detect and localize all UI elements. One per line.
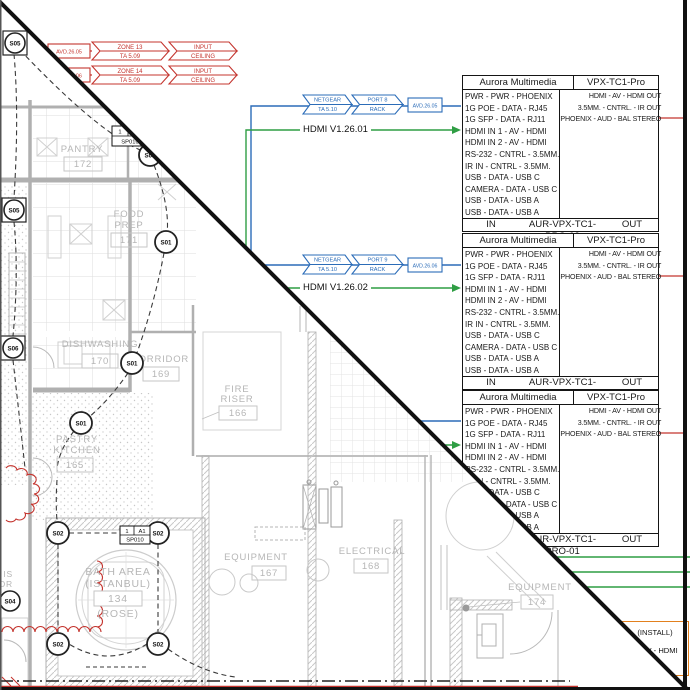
room-bath-label1: BATH AREA xyxy=(85,566,150,578)
run2-port-loc: RACK xyxy=(370,267,386,273)
zone1-loc: CEILING xyxy=(191,54,215,60)
device-input-row: HDMI IN 1 - AV - HDMI xyxy=(465,126,559,138)
wire-arrowheads xyxy=(452,126,461,449)
room-bath-label3: (ROSE) xyxy=(97,608,139,620)
device-input-row: 1G SFP - DATA - RJ11 xyxy=(465,429,559,441)
zone2-loc: CEILING xyxy=(191,78,215,84)
tag-s01-d: S01 xyxy=(75,421,87,428)
device-input-row: PWR - PWR - PHOENIX xyxy=(465,91,559,103)
device-out-label: OUT xyxy=(606,534,658,547)
room-fireriser-label2: RISER xyxy=(220,394,253,405)
device-input-row: USB - DATA - USB A xyxy=(465,195,559,207)
device-model: VPX-TC1-Pro xyxy=(574,234,658,247)
zone2-type: INPUT xyxy=(194,69,212,75)
edge-partial-label2: OR xyxy=(0,579,13,589)
device-output-row: HDMI - AV - HDMI OUT xyxy=(560,249,661,261)
zone1-ta: TA 5.09 xyxy=(120,54,141,60)
run2-switch-id: TA 5.10 xyxy=(318,267,337,273)
device-input-row: HDMI IN 2 - AV - HDMI xyxy=(465,137,559,149)
room-corridor-number: 169 xyxy=(152,369,170,380)
device-input-row: 1G SFP - DATA - RJ11 xyxy=(465,272,559,284)
device-input-row: 1G POE - DATA - RJ45 xyxy=(465,261,559,273)
device-input-row: PWR - PWR - PHOENIX xyxy=(465,406,559,418)
zone1-id: ZONE 13 xyxy=(117,45,143,51)
run2-switch: NETGEAR xyxy=(314,258,341,264)
device-inputs: PWR - PWR - PHOENIX1G POE - DATA - RJ451… xyxy=(463,90,560,218)
run2-ref: AVD.26.06 xyxy=(413,264,438,270)
device-model: VPX-TC1-Pro xyxy=(574,76,658,89)
device-input-row: PWR - PWR - PHOENIX xyxy=(465,249,559,261)
device-input-row: 1G SFP - DATA - RJ11 xyxy=(465,114,559,126)
netgear-run1: NETGEAR TA 5.10 PORT 8 RACK AVD.26.05 xyxy=(303,95,442,114)
device-output-row: 3.5MM. - CNTRL. - IR OUT xyxy=(560,103,661,115)
sp-tag-id: SP010 xyxy=(126,538,143,544)
device-in-label: IN xyxy=(463,377,519,390)
room-bath-number: 134 xyxy=(108,593,128,605)
device-output-row: 3.5MM. - CNTRL. - IR OUT xyxy=(560,418,661,430)
device-maker: Aurora Multimedia xyxy=(463,391,574,404)
device-input-row: USB - DATA - USB A xyxy=(465,365,559,377)
run1-port: PORT 8 xyxy=(367,98,387,104)
hdmi-run1-label: HDMI V1.26.01 xyxy=(300,124,371,136)
room-electrical-number: 168 xyxy=(362,561,380,572)
netgear-run2: NETGEAR TA 5.10 PORT 9 RACK AVD.26.06 xyxy=(303,255,442,274)
room-pastry-number: 165 xyxy=(66,460,84,471)
device-input-row: USB - DATA - USB A xyxy=(465,353,559,365)
device-outputs: HDMI - AV - HDMI OUT3.5MM. - CNTRL. - IR… xyxy=(560,90,663,218)
zone1-ref: AVD.26.05 xyxy=(56,50,82,56)
device-footer: IN AUR-VPX-TC1-PRO-02 OUT xyxy=(463,376,658,390)
device-input-row: HDMI IN 1 - AV - HDMI xyxy=(465,284,559,296)
room-pantry-number: 172 xyxy=(74,159,92,170)
device-input-row: HDMI IN 2 - AV - HDMI xyxy=(465,452,559,464)
device-input-row: RS-232 - CNTRL - 3.5MM. xyxy=(465,149,559,161)
tag-s05: S05 xyxy=(9,41,21,48)
device-footer: IN AUR-VPX-TC1-PRO-03 OUT xyxy=(463,218,658,232)
device-output-row: HDMI - AV - HDMI OUT xyxy=(560,406,661,418)
device-out-label: OUT xyxy=(606,377,658,390)
device-output-row: PHOENIX - AUD - BAL STEREO xyxy=(560,272,661,284)
room-equipment174-number: 174 xyxy=(528,597,546,608)
hdmi-run2-label: HDMI V1.26.02 xyxy=(300,282,371,294)
stipple-pastry xyxy=(30,393,153,520)
tag-s01-b: S01 xyxy=(160,240,172,247)
tag-s04: S04 xyxy=(4,599,16,606)
tag-s01-c: S01 xyxy=(126,361,138,368)
tag-s02-b: S02 xyxy=(152,531,164,538)
device-input-row: RS-232 - CNTRL - 3.5MM. xyxy=(465,307,559,319)
device-in-label: IN xyxy=(463,219,519,232)
device-input-row: RS-232 - CNTRL - 3.5MM. xyxy=(465,464,559,476)
tag-s06: S06 xyxy=(7,346,19,353)
room-pastry-label2: KITCHEN xyxy=(53,445,100,456)
room-dishwashing-number: 170 xyxy=(91,356,109,367)
device-maker: Aurora Multimedia xyxy=(463,76,574,89)
device-table-pro-03: Aurora Multimedia VPX-TC1-Pro PWR - PWR … xyxy=(462,75,659,232)
edge-partial-label1: IS xyxy=(3,569,13,579)
device-output-row: 3.5MM. - CNTRL. - IR OUT xyxy=(560,261,661,273)
device-input-row: 1G POE - DATA - RJ45 xyxy=(465,418,559,430)
device-model: VPX-TC1-Pro xyxy=(574,391,658,404)
device-input-row: CAMERA - DATA - USB C xyxy=(465,184,559,196)
tag-s02-c: S02 xyxy=(52,642,64,649)
device-input-row: HDMI IN 2 - AV - HDMI xyxy=(465,295,559,307)
room-equipment174-label: EQUIPMENT xyxy=(508,582,572,593)
run2-port: PORT 9 xyxy=(367,258,387,264)
device-name: AUR-VPX-TC1-PRO-03 xyxy=(519,219,606,232)
run1-ref: AVD.26.05 xyxy=(413,104,438,110)
run1-switch: NETGEAR xyxy=(314,98,341,104)
room-fireriser-number: 166 xyxy=(229,408,247,419)
device-input-row: 1G POE - DATA - RJ45 xyxy=(465,103,559,115)
device-output-row: PHOENIX - AUD - BAL STEREO xyxy=(560,114,661,126)
device-outputs: HDMI - AV - HDMI OUT3.5MM. - CNTRL. - IR… xyxy=(560,405,663,533)
room-bath-label2: (ISTANBUL) xyxy=(85,578,151,590)
run1-switch-id: TA 5.10 xyxy=(318,107,337,113)
device-output-row: PHOENIX - AUD - BAL STEREO xyxy=(560,429,661,441)
room-foodprep-label2: PREP xyxy=(114,220,143,231)
room-pastry-label1: PASTRY xyxy=(56,434,98,445)
device-out-label: OUT xyxy=(606,219,658,232)
zone2-id: ZONE 14 xyxy=(117,69,143,75)
room-dishwashing-label: DISHWASHING xyxy=(62,339,139,350)
device-maker: Aurora Multimedia xyxy=(463,234,574,247)
tag-s02-d: S02 xyxy=(152,642,164,649)
device-input-row: IR IN - CNTRL - 3.5MM. xyxy=(465,161,559,173)
device-outputs: HDMI - AV - HDMI OUT3.5MM. - CNTRL. - IR… xyxy=(560,248,663,376)
device-input-row: HDMI IN 1 - AV - HDMI xyxy=(465,441,559,453)
drawing-canvas: PANTRY 172 FOOD PREP 171 DISHWASHING 170… xyxy=(0,0,690,690)
device-output-row: HDMI - AV - HDMI OUT xyxy=(560,91,661,103)
run1-port-loc: RACK xyxy=(370,107,386,113)
device-input-row: USB - DATA - USB A xyxy=(465,207,559,219)
room-electrical-label: ELECTRICAL xyxy=(339,546,406,557)
zone2-ta: TA 5.09 xyxy=(120,78,141,84)
room-foodprep-label1: FOOD xyxy=(114,209,145,220)
sp-tag-c1: 1 xyxy=(125,529,128,535)
zone-flags: AVD.26.05 ZONE 13 TA 5.09 INPUT CEILING … xyxy=(48,42,237,84)
device-input-row: USB - DATA - USB C xyxy=(465,172,559,184)
room-equipment167-label: EQUIPMENT xyxy=(224,552,288,563)
tag-s02-a: S02 xyxy=(52,531,64,538)
stipple-left-band xyxy=(0,185,28,485)
sp-tag2-c1: 1 xyxy=(118,130,121,136)
device-header: Aurora Multimedia VPX-TC1-Pro xyxy=(463,76,658,90)
device-name: AUR-VPX-TC1-PRO-02 xyxy=(519,377,606,390)
room-foodprep-number: 171 xyxy=(120,235,138,246)
device-inputs: PWR - PWR - PHOENIX1G POE - DATA - RJ451… xyxy=(463,248,560,376)
device-input-row: USB - DATA - USB C xyxy=(465,330,559,342)
zone1-type: INPUT xyxy=(194,45,212,51)
room-equipment167-number: 167 xyxy=(260,568,278,579)
device-input-row: CAMERA - DATA - USB C xyxy=(465,342,559,354)
room-pantry-label: PANTRY xyxy=(61,144,103,155)
device-table-pro-02: Aurora Multimedia VPX-TC1-Pro PWR - PWR … xyxy=(462,233,659,390)
device-header: Aurora Multimedia VPX-TC1-Pro xyxy=(463,234,658,248)
sp-tag-c2: A1 xyxy=(138,529,145,535)
tile-floor-foodprep xyxy=(33,183,196,331)
tag-s05b: S05 xyxy=(8,208,20,215)
device-header: Aurora Multimedia VPX-TC1-Pro xyxy=(463,391,658,405)
device-input-row: IR IN - CNTRL - 3.5MM. xyxy=(465,319,559,331)
sp-tag2-id: SP010 xyxy=(121,140,138,146)
